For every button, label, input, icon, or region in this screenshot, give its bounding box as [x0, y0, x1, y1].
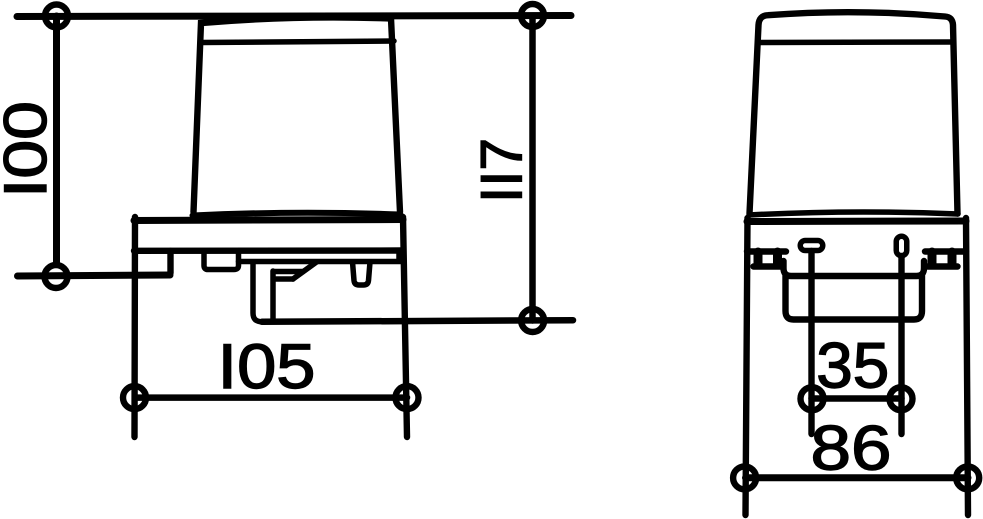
svg-text:I05: I05 — [218, 332, 316, 402]
svg-text:II7: II7 — [470, 138, 535, 203]
svg-text:I00: I00 — [0, 101, 59, 198]
svg-text:35: 35 — [816, 330, 889, 402]
svg-text:86: 86 — [811, 414, 892, 484]
